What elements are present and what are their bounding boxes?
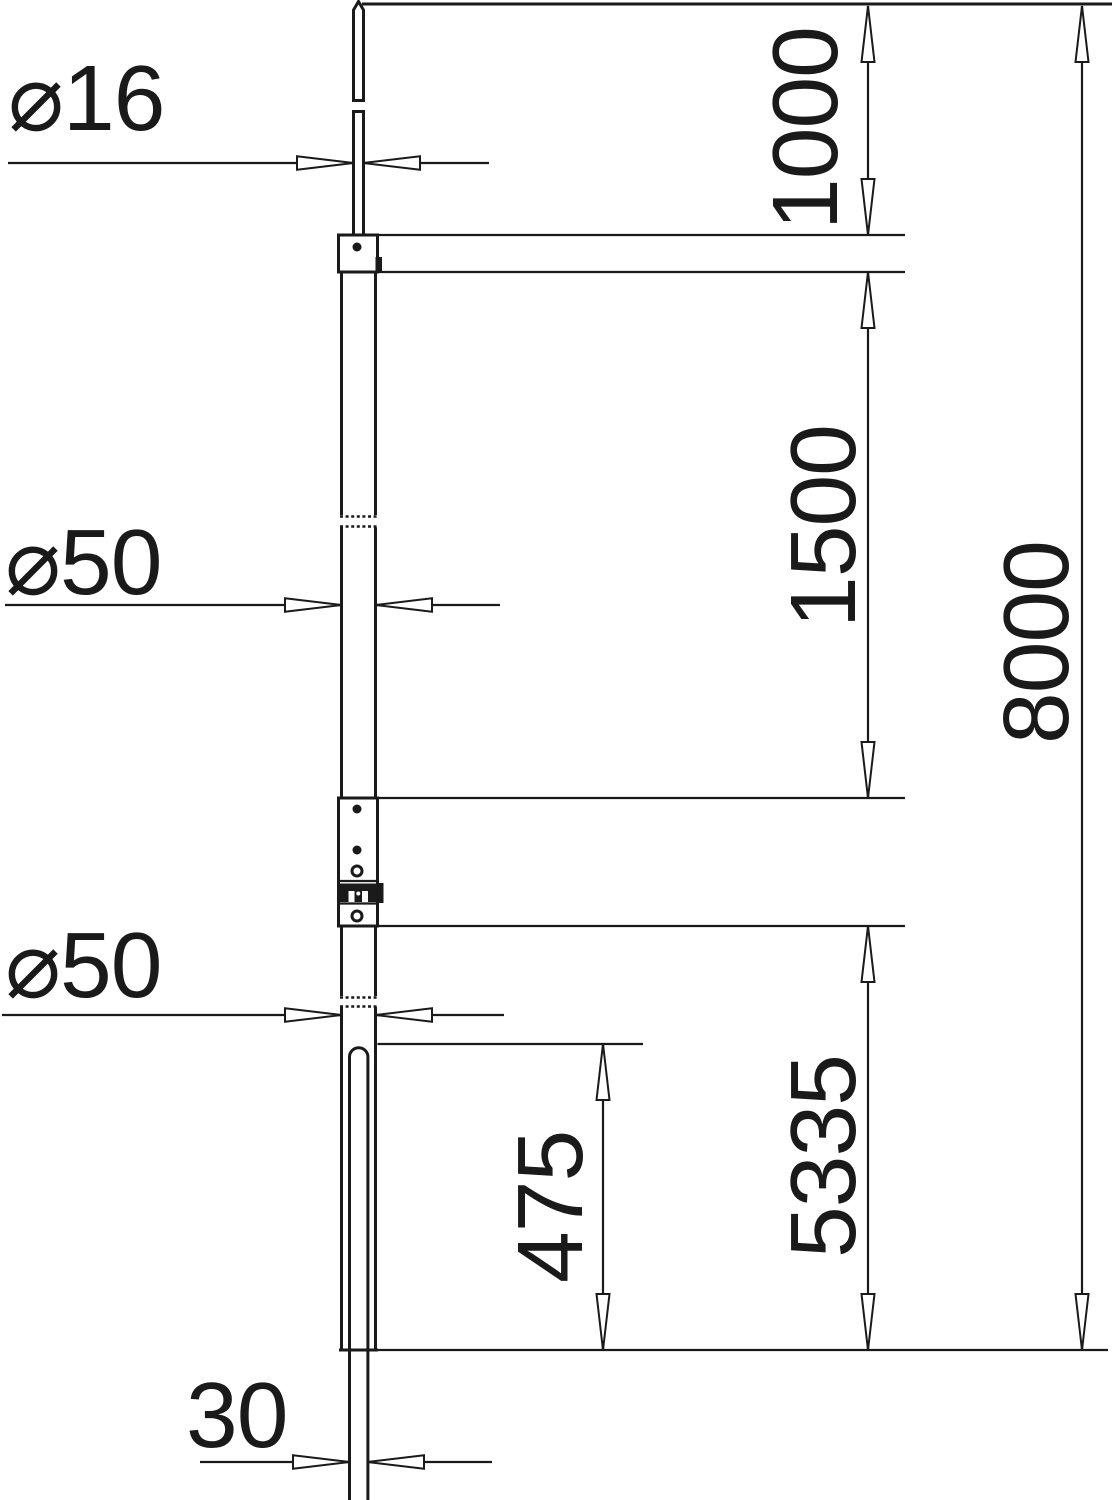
dim-label-dia50-upper: ⌀50	[5, 510, 161, 614]
arrowhead-down	[862, 179, 875, 235]
clamp-notch-left	[349, 891, 355, 902]
clamp-side-tab	[377, 883, 384, 903]
arrowhead-left	[368, 1455, 425, 1469]
connector-block-body	[339, 235, 378, 272]
dim-5335: 5335	[771, 926, 875, 1350]
dim-label-1500: 1500	[771, 425, 875, 628]
mast-dimension-drawing: 1000 1500 5335 8000 475 ⌀16 ⌀50	[0, 0, 1118, 1500]
coupling-rivet-dot	[353, 846, 362, 855]
arrowhead-left	[376, 1008, 433, 1022]
dim-dia16: ⌀16	[8, 46, 489, 170]
coupling-body	[339, 798, 378, 926]
connector-side-tab	[376, 257, 383, 271]
dim-label-5335: 5335	[771, 1055, 875, 1258]
clamp-notch-right	[362, 891, 368, 902]
air-rod-lower-segment	[354, 112, 364, 236]
dim-dia50-upper: ⌀50	[5, 510, 500, 614]
arrowhead-down	[597, 1294, 610, 1350]
dim-475: 475	[498, 1044, 610, 1350]
coupling-bolt-ring	[352, 866, 362, 876]
arrowhead-up	[862, 926, 875, 982]
inner-rod	[350, 1048, 368, 1500]
dim-8000: 8000	[984, 6, 1089, 1350]
arrowhead-right	[285, 1008, 342, 1022]
dim-dia50-lower: ⌀50	[2, 913, 504, 1022]
arrowhead-down	[862, 742, 875, 798]
air-rod-tip-segment	[354, 2, 364, 101]
arrowhead-down	[862, 1294, 875, 1350]
arrowhead-up	[862, 272, 875, 328]
arrowhead-left	[376, 598, 433, 612]
dim-1000: 1000	[753, 6, 875, 235]
arrowhead-left	[364, 156, 421, 170]
mast-assembly	[339, 2, 384, 1500]
arrowhead-right	[293, 1455, 350, 1469]
arrowhead-right	[297, 156, 354, 170]
arrowhead-down	[1076, 1294, 1089, 1350]
upper-tube	[340, 274, 377, 799]
connector-block	[339, 235, 383, 272]
arrowhead-right	[285, 598, 342, 612]
arrowhead-up	[597, 1044, 610, 1100]
arrowhead-up	[1076, 6, 1089, 62]
dim-label-475: 475	[498, 1131, 602, 1283]
lower-tube	[339, 926, 378, 1350]
dim-label-30: 30	[186, 1363, 287, 1467]
dim-1500: 1500	[771, 272, 875, 798]
connector-screw-dot	[353, 243, 362, 252]
dim-30: 30	[186, 1363, 492, 1469]
arrowhead-up	[862, 6, 875, 62]
coupling-sleeve	[339, 798, 384, 926]
dim-label-8000: 8000	[984, 541, 1088, 744]
dimension-drawing-page: 1000 1500 5335 8000 475 ⌀16 ⌀50	[0, 0, 1118, 1500]
coupling-rivet-dot	[353, 805, 362, 814]
dim-label-1000: 1000	[753, 27, 857, 230]
clamp-pin-hole	[356, 892, 360, 896]
dim-label-dia16: ⌀16	[8, 46, 164, 150]
dim-label-dia50-lower: ⌀50	[5, 913, 161, 1017]
coupling-bolt-ring	[352, 911, 362, 921]
